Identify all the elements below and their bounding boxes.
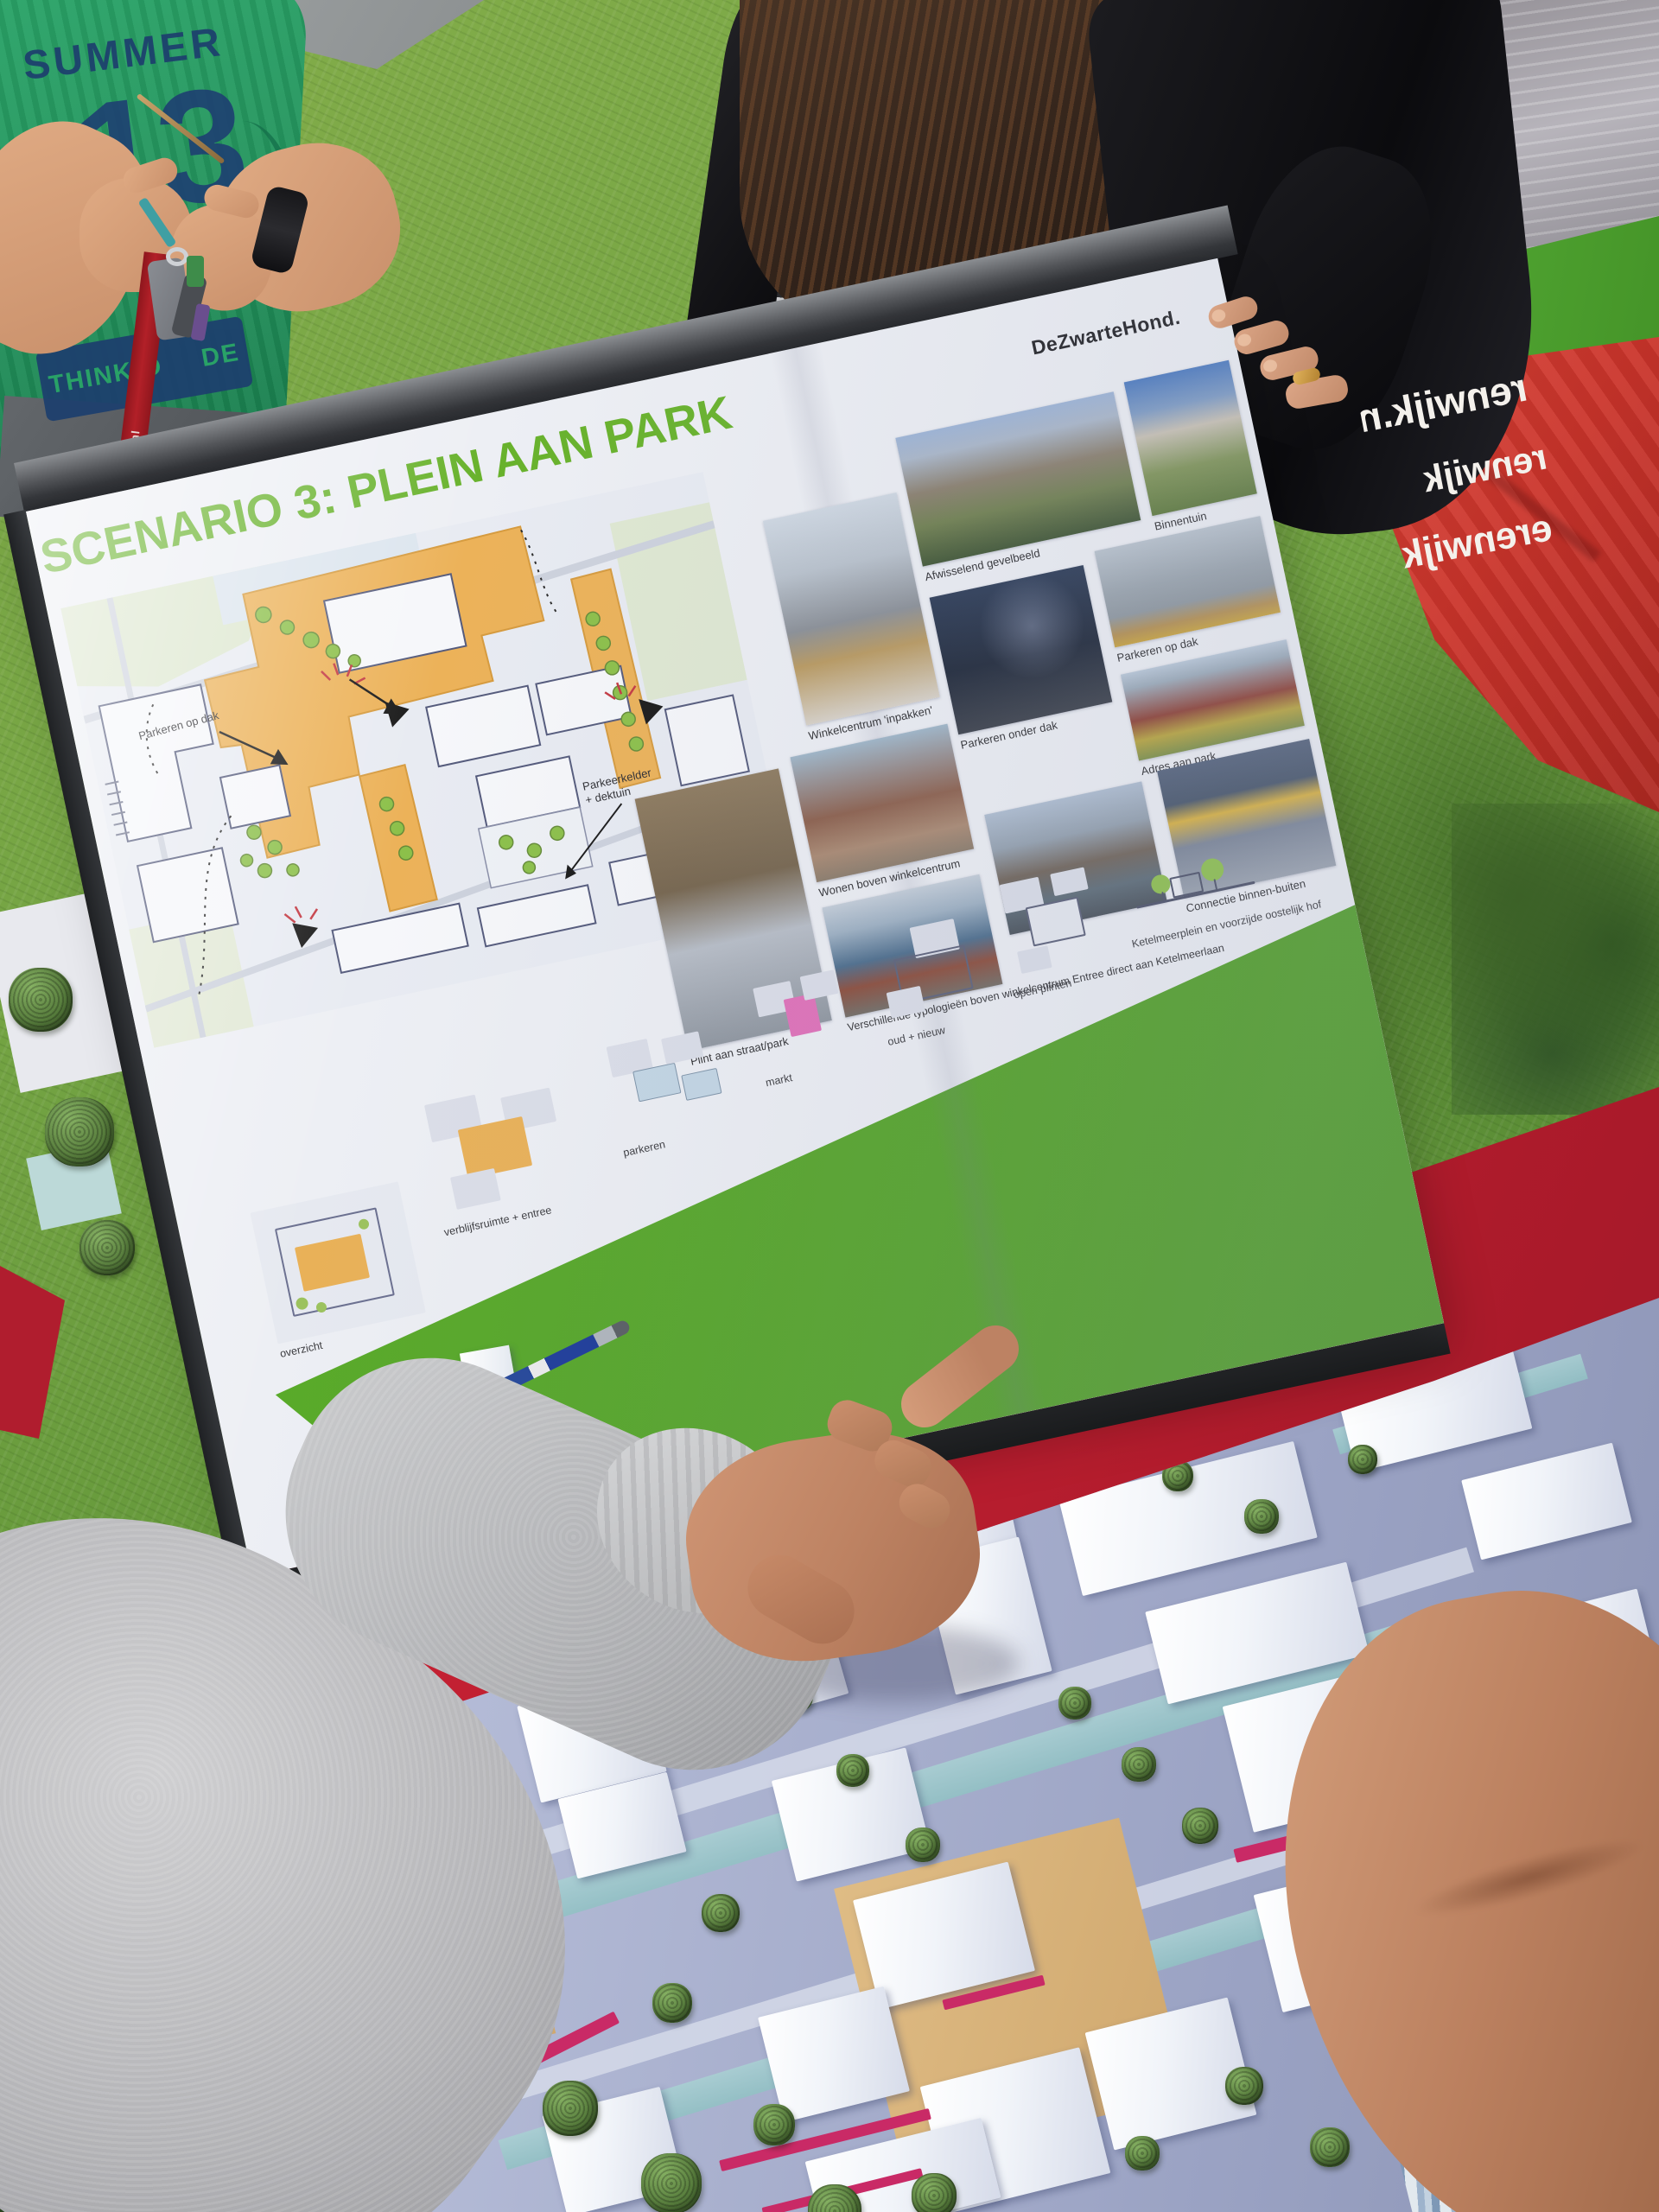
model-tree [1122,1747,1156,1782]
fingernail [1211,308,1228,323]
fingernail [1262,359,1279,373]
model-tree [1182,1808,1218,1844]
model-tree [1348,1445,1377,1474]
model-tree [543,2081,598,2136]
model-tree [652,1983,692,2023]
shirt-banner-right: DE [200,338,242,372]
model-tree [1125,2136,1160,2171]
model-tree [753,2104,795,2145]
model-tree [1244,1499,1279,1534]
model-tree [906,1827,940,1862]
model-building [1461,1443,1632,1560]
model-tree [836,1754,869,1787]
model-tree [702,1894,740,1932]
key-ring [166,247,188,266]
model-tree [9,968,73,1032]
model-tree [641,2153,702,2212]
shrubs [1452,804,1659,1115]
model-tree [912,2173,957,2212]
model-tree [1310,2127,1350,2167]
model-tree [1225,2067,1263,2105]
fingernail [1236,333,1252,348]
model-tree [45,1097,114,1166]
model-tree [1058,1687,1091,1719]
flag-mirrored-text: renwijk.nl renwijk erenwijk [1354,328,1659,662]
outdoor-presentation-photo: renwijk.nl renwijk erenwijk SUMMER 13 TH… [0,0,1659,2212]
model-tree [79,1220,135,1275]
key-charm [187,256,204,287]
